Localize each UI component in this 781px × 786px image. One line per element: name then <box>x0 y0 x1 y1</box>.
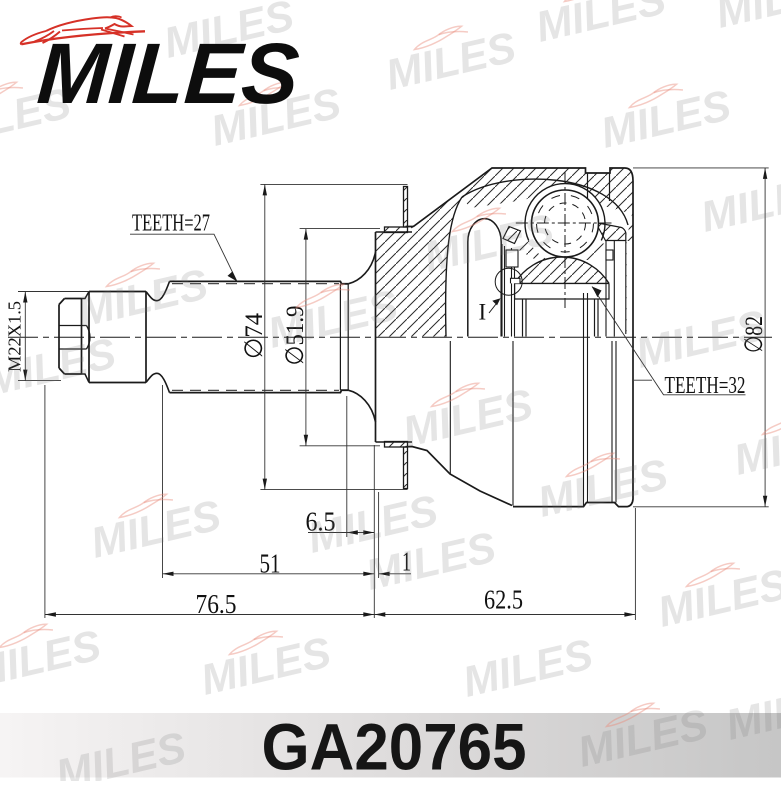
svg-text:MILES: MILES <box>34 26 302 122</box>
svg-text:GA20765: GA20765 <box>262 710 527 782</box>
svg-text:I: I <box>479 300 487 325</box>
svg-text:TEETH=32: TEETH=32 <box>665 373 746 399</box>
svg-text:51: 51 <box>260 549 281 579</box>
svg-text:∅74: ∅74 <box>241 313 268 359</box>
svg-text:76.5: 76.5 <box>196 589 237 619</box>
svg-text:62.5: 62.5 <box>484 585 523 615</box>
svg-text:TEETH=27: TEETH=27 <box>132 211 210 237</box>
